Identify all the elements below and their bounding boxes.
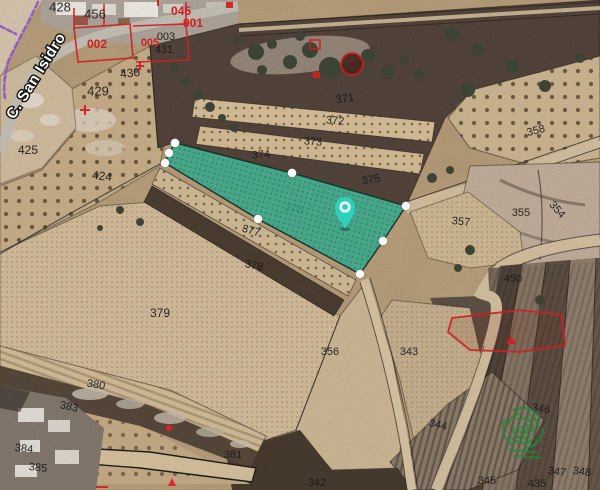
parcel-label-355: 355 bbox=[512, 207, 530, 219]
parcel-label-450: 450 bbox=[504, 273, 522, 285]
parcel-label-347: 347 bbox=[547, 465, 567, 479]
vertex-dot[interactable] bbox=[402, 202, 411, 211]
vertex-dot[interactable] bbox=[165, 149, 174, 158]
parcel-label-425: 425 bbox=[18, 143, 38, 157]
red-label-005: 005 bbox=[141, 37, 159, 49]
vertex-dot[interactable] bbox=[379, 237, 388, 246]
parcel-label-381: 381 bbox=[224, 449, 242, 461]
parcel-label-435: 435 bbox=[528, 478, 546, 490]
parcel-label-428: 428 bbox=[49, 0, 71, 15]
map-viewport[interactable]: 3713723733743753763773783793803833843853… bbox=[0, 0, 600, 490]
map-canvas[interactable]: 3713723733743753763773783793803833843853… bbox=[0, 0, 600, 490]
parcel-label-003: 003 bbox=[157, 31, 175, 43]
red-label-901: 901 bbox=[183, 16, 203, 30]
red-outlined-tree bbox=[341, 53, 363, 75]
parcel-label-430: 430 bbox=[119, 65, 141, 81]
parcel-label-373: 373 bbox=[303, 135, 322, 149]
parcel-label-374: 374 bbox=[251, 148, 270, 162]
parcel-label-357: 357 bbox=[451, 215, 471, 229]
parcel-label-384: 384 bbox=[14, 442, 34, 456]
terrain-layer bbox=[0, 0, 600, 490]
parcel-label-356: 356 bbox=[321, 346, 339, 358]
parcel-label-379: 379 bbox=[150, 306, 170, 320]
parcel-label-348: 348 bbox=[572, 465, 592, 479]
parcel-label-371: 371 bbox=[335, 92, 355, 106]
parcel-label-424: 424 bbox=[91, 168, 113, 184]
parcel-label-385: 385 bbox=[28, 461, 48, 475]
parcel-label-342: 342 bbox=[308, 477, 326, 489]
vertex-dot[interactable] bbox=[171, 139, 180, 148]
vertex-dot[interactable] bbox=[356, 270, 365, 279]
parcel-label-345: 345 bbox=[478, 475, 496, 487]
parcel-label-429: 429 bbox=[87, 84, 109, 99]
vertex-dot[interactable] bbox=[254, 215, 263, 224]
parcel-label-372: 372 bbox=[325, 114, 344, 127]
vertex-dot[interactable] bbox=[161, 159, 170, 168]
vertex-dot[interactable] bbox=[288, 169, 297, 178]
red-point-marker bbox=[166, 425, 172, 431]
parcel-label-343: 343 bbox=[400, 346, 418, 358]
red-ruin-outline bbox=[448, 310, 565, 352]
parcel-label-456: 456 bbox=[84, 7, 106, 22]
red-label-002: 002 bbox=[87, 37, 107, 51]
